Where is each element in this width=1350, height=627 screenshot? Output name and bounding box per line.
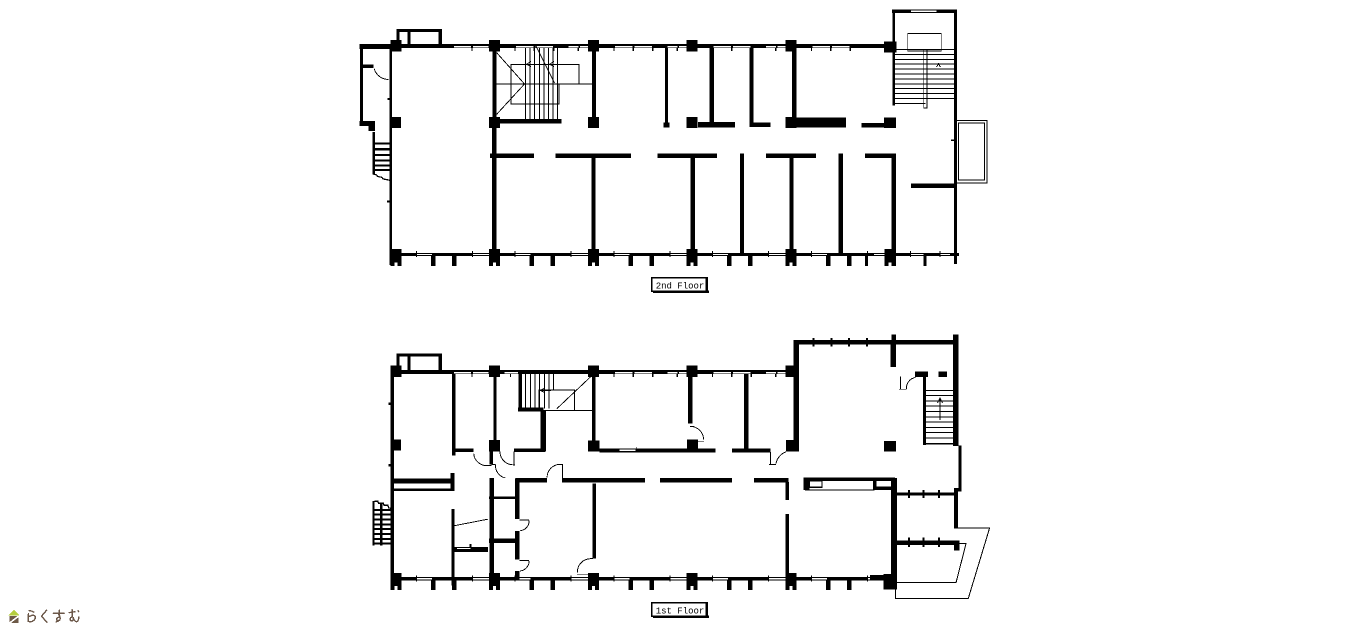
svg-text:2nd Floor: 2nd Floor [656,281,705,291]
svg-text:1st Floor: 1st Floor [656,606,705,616]
